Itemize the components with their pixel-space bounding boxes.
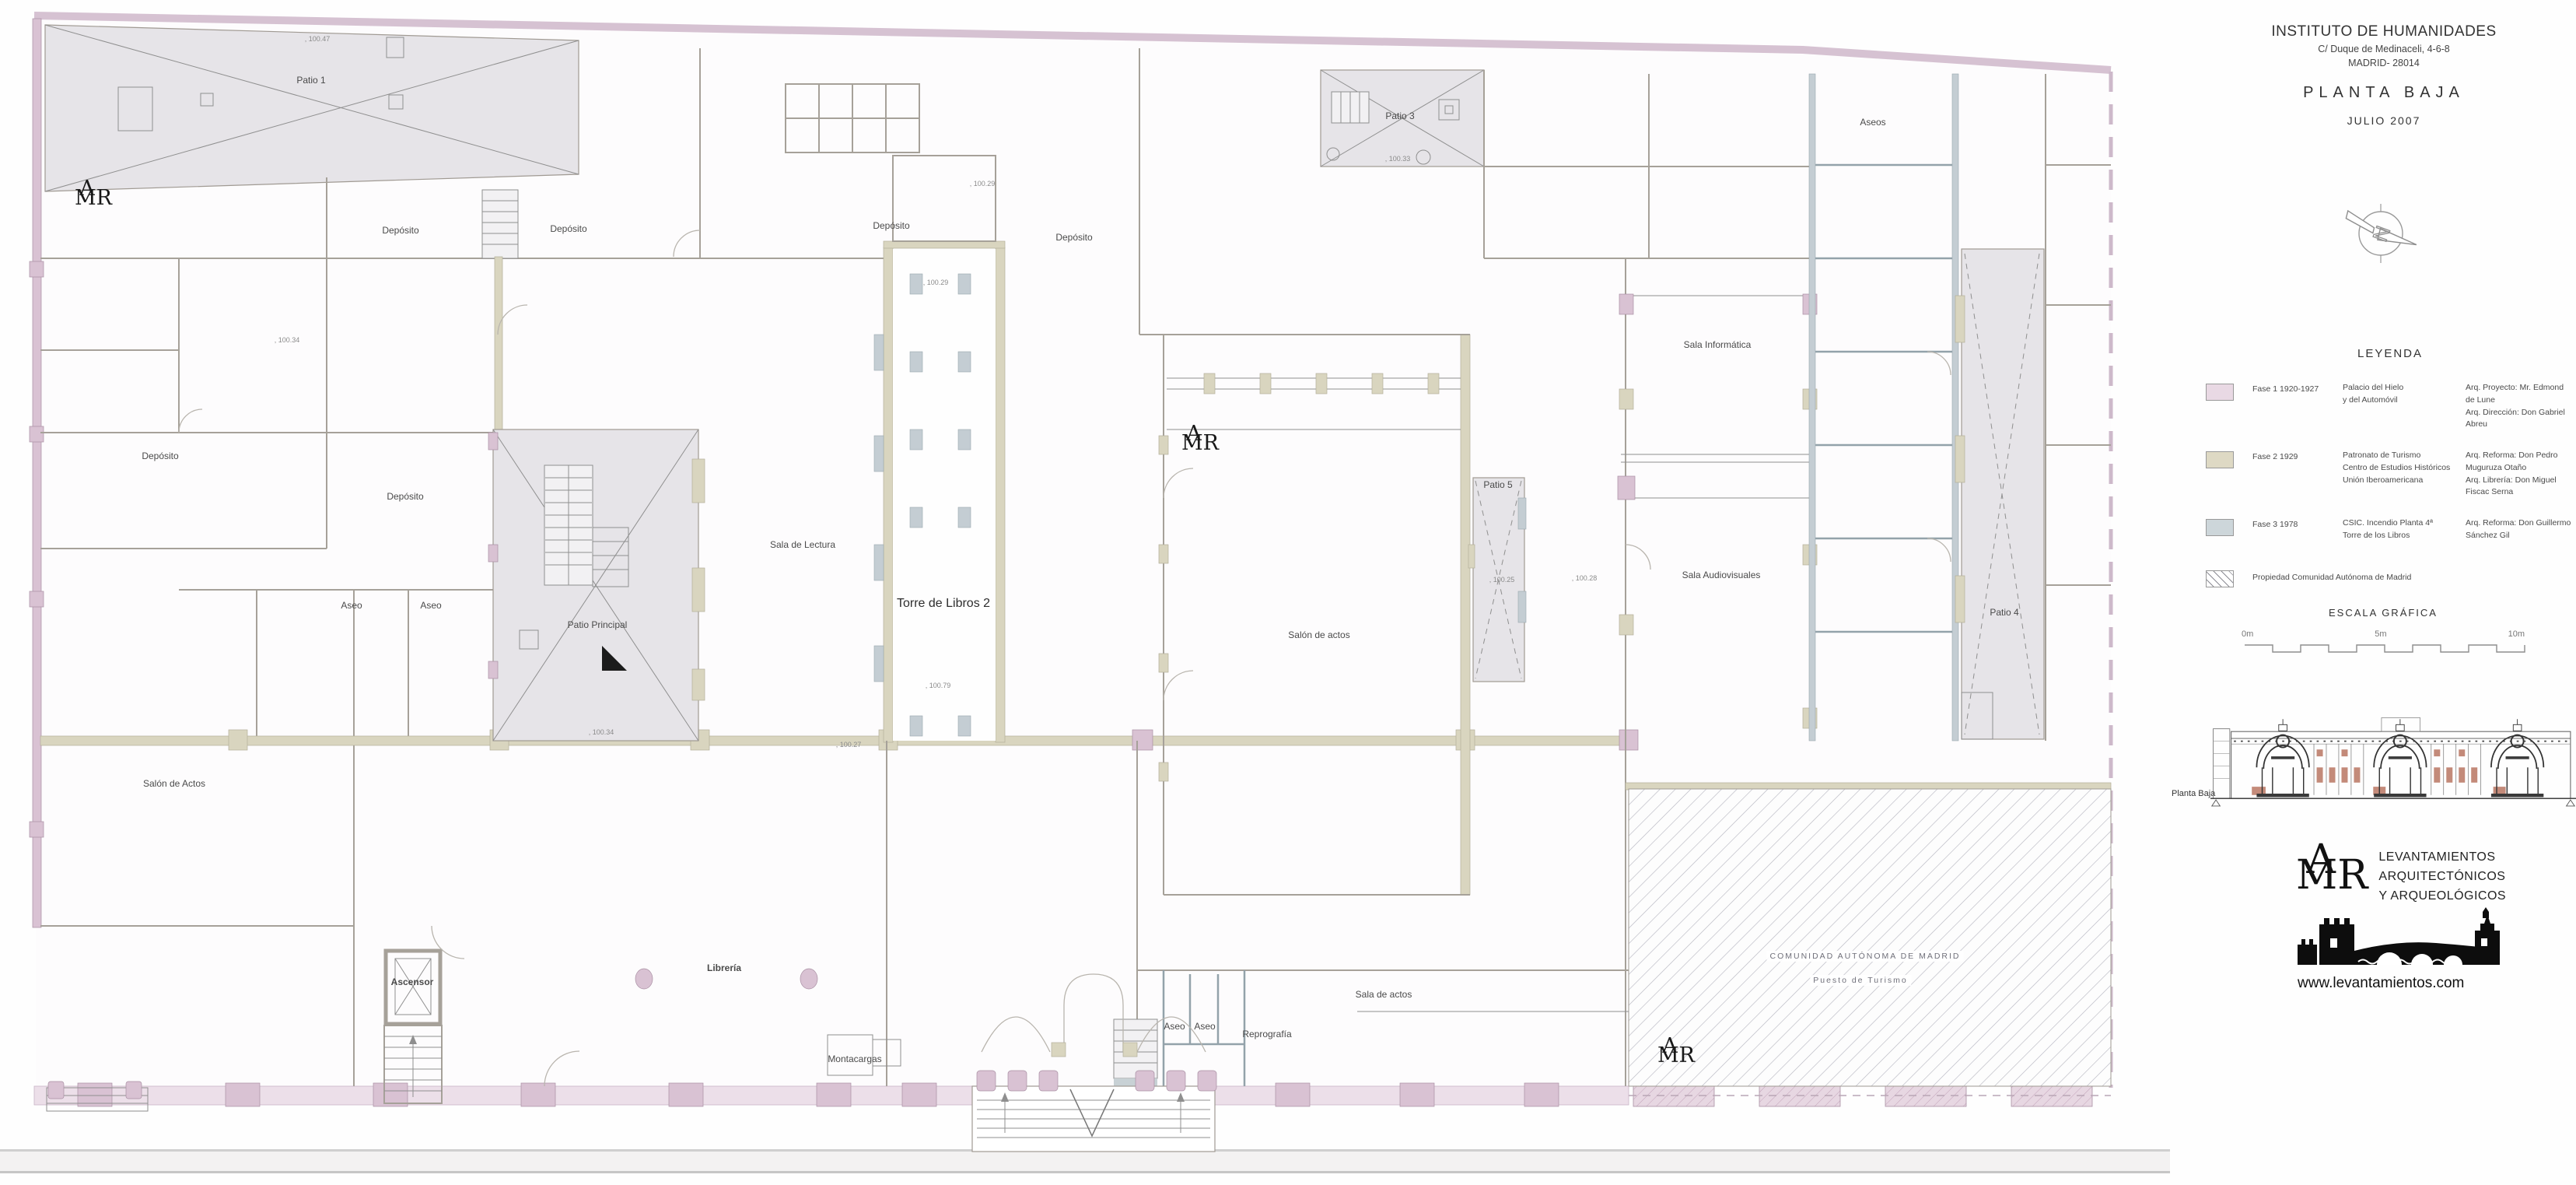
room-label: Patio 1 [296, 75, 325, 86]
room-label: Patio 3 [1385, 110, 1414, 121]
title-block: INSTITUTO DE HUMANIDADES C/ Duque de Med… [2240, 23, 2528, 127]
legend-row-fase2: Fase 2 1929 Patronato de TurismoCentro d… [2206, 450, 2574, 499]
elevation-mark: , 100.29 [970, 180, 996, 188]
scale-tick-0: 0m [2242, 629, 2253, 639]
room-label: Sala Informática [1684, 339, 1752, 350]
room-label: Librería [707, 962, 741, 973]
north-arrow-icon: N [2338, 195, 2424, 276]
scale-heading: ESCALA GRÁFICA [2238, 607, 2528, 619]
castle-bridge-silhouette-icon [2296, 907, 2529, 968]
legend-fase3-architects: Arq. Reforma: Don Guillermo Sánchez Gil [2466, 517, 2574, 542]
project-address: C/ Duque de Medinaceli, 4-6-8 [2240, 44, 2528, 54]
amr-watermark: AMR [75, 181, 112, 209]
legend-fase1-architects: Arq. Proyecto: Mr. Edmond de LuneArq. Di… [2466, 382, 2574, 431]
room-label: Aseo [1194, 1021, 1215, 1032]
room-label: Ascensor [391, 976, 434, 987]
legend-heading: LEYENDA [2206, 347, 2574, 360]
room-label: COMUNIDAD AUTÓNOMA DE MADRID [1766, 951, 1963, 962]
room-label: Torre de Libros 2 [897, 597, 990, 611]
room-label: Depósito [387, 491, 423, 502]
room-label: Sala de Lectura [770, 539, 835, 550]
facade-elevation: Planta Baja [2170, 691, 2576, 823]
elevation-mark: , 100.28 [1572, 574, 1598, 582]
legend-fase2-architects: Arq. Reforma: Don Pedro Muguruza OtañoAr… [2466, 450, 2574, 499]
room-label: Sala de actos [1356, 989, 1412, 1000]
elevation-level-label: Planta Baja [2172, 789, 2215, 798]
room-label: Sala Audiovisuales [1682, 570, 1761, 580]
elevation-mark: , 100.47 [305, 35, 331, 43]
room-label: Montacargas [828, 1054, 881, 1064]
elevation-mark: , 100.29 [923, 279, 949, 286]
legend-fase3-desc: CSIC. Incendio Planta 4ªTorre de los Lib… [2343, 517, 2466, 542]
legend-fase2-desc: Patronato de TurismoCentro de Estudios H… [2343, 450, 2466, 486]
project-title: INSTITUTO DE HUMANIDADES [2240, 23, 2528, 40]
room-label: Salón de Actos [143, 778, 205, 789]
legend-fase1-desc: Palacio del Hieloy del Automóvil [2343, 382, 2466, 407]
room-label: Reprografía [1242, 1029, 1291, 1040]
company-logo: A MR LEVANTAMIENTOS ARQUITECTÓNICOS Y AR… [2296, 845, 2560, 992]
room-label: Aseo [1164, 1021, 1185, 1032]
scale-bar: ESCALA GRÁFICA 0m 5m 10m [2238, 607, 2528, 663]
legend-fase3-label: Fase 3 1978 [2252, 517, 2343, 531]
room-label: Aseo [341, 600, 362, 611]
scale-tick-10: 10m [2508, 629, 2525, 639]
room-label: Patio 4 [1990, 607, 2018, 618]
room-label: Depósito [550, 223, 586, 234]
room-label: Depósito [1055, 232, 1092, 243]
room-label: Salón de actos [1288, 629, 1349, 640]
legend-swatch-fase1-icon [2206, 384, 2234, 401]
legend-fase2-label: Fase 2 1929 [2252, 450, 2343, 464]
svg-text:N: N [2368, 223, 2396, 244]
room-label: Aseo [420, 600, 441, 611]
drawing-name: PLANTA BAJA [2240, 84, 2528, 102]
room-label: Depósito [142, 451, 178, 461]
legend-row-fase1: Fase 1 1920-1927 Palacio del Hieloy del … [2206, 382, 2574, 431]
drawing-sheet: Patio 1, 100.47DepósitoDepósitoDepósitoD… [0, 0, 2576, 1185]
elevation-mark: , 100.34 [275, 336, 300, 344]
scale-bar-graphic [2238, 639, 2528, 659]
legend-row-fase3: Fase 3 1978 CSIC. Incendio Planta 4ªTorr… [2206, 517, 2574, 542]
legend-swatch-hatch-icon [2206, 570, 2234, 587]
elevation-mark: , 100.79 [926, 682, 951, 689]
floor-plan-drawing [0, 0, 2170, 1185]
scale-ticks: 0m 5m 10m [2242, 629, 2525, 639]
legend-fase1-label: Fase 1 1920-1927 [2252, 382, 2343, 396]
scale-tick-5: 5m [2375, 629, 2386, 639]
elevation-mark: , 100.25 [1489, 576, 1515, 584]
amr-monogram: A MR [2296, 845, 2368, 896]
room-label: Patio 5 [1483, 479, 1512, 490]
legend-swatch-fase3-icon [2206, 519, 2234, 536]
room-label: Patio Principal [568, 619, 628, 630]
project-city: MADRID- 28014 [2240, 58, 2528, 68]
legend-row-property: Propiedad Comunidad Autónoma de Madrid [2206, 569, 2574, 587]
room-label: Puesto de Turismo [1810, 975, 1911, 986]
room-label: Depósito [382, 225, 418, 236]
room-label: Depósito [873, 220, 909, 231]
room-label: Aseos [1860, 117, 1885, 128]
legend-property-label: Propiedad Comunidad Autónoma de Madrid [2252, 569, 2411, 584]
legend: LEYENDA Fase 1 1920-1927 Palacio del Hie… [2206, 347, 2574, 606]
company-url: www.levantamientos.com [2298, 975, 2560, 992]
company-name: LEVANTAMIENTOS ARQUITECTÓNICOS Y ARQUEOL… [2378, 845, 2506, 906]
elevation-mark: , 100.27 [836, 741, 862, 749]
elevation-mark: , 100.34 [589, 728, 614, 736]
legend-swatch-fase2-icon [2206, 451, 2234, 468]
elevation-mark: , 100.33 [1385, 155, 1411, 163]
amr-watermark: AMR [1657, 1038, 1695, 1066]
facade-elevation-drawing [2210, 691, 2576, 823]
amr-watermark: AMR [1181, 426, 1219, 454]
drawing-date: JULIO 2007 [2240, 114, 2528, 127]
